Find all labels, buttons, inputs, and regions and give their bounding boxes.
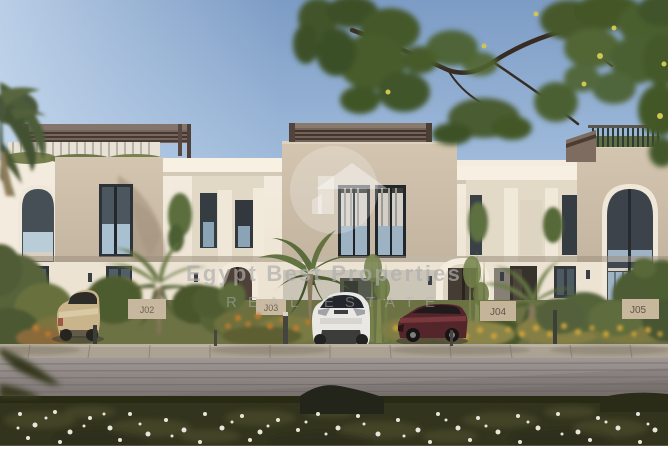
svg-text:J02: J02	[140, 305, 155, 315]
svg-text:REAL ESTATE: REAL ESTATE	[226, 294, 446, 311]
svg-text:J05: J05	[630, 305, 647, 316]
svg-text:J04: J04	[490, 307, 507, 318]
svg-text:Egypt Best Properties: Egypt Best Properties	[186, 261, 462, 286]
